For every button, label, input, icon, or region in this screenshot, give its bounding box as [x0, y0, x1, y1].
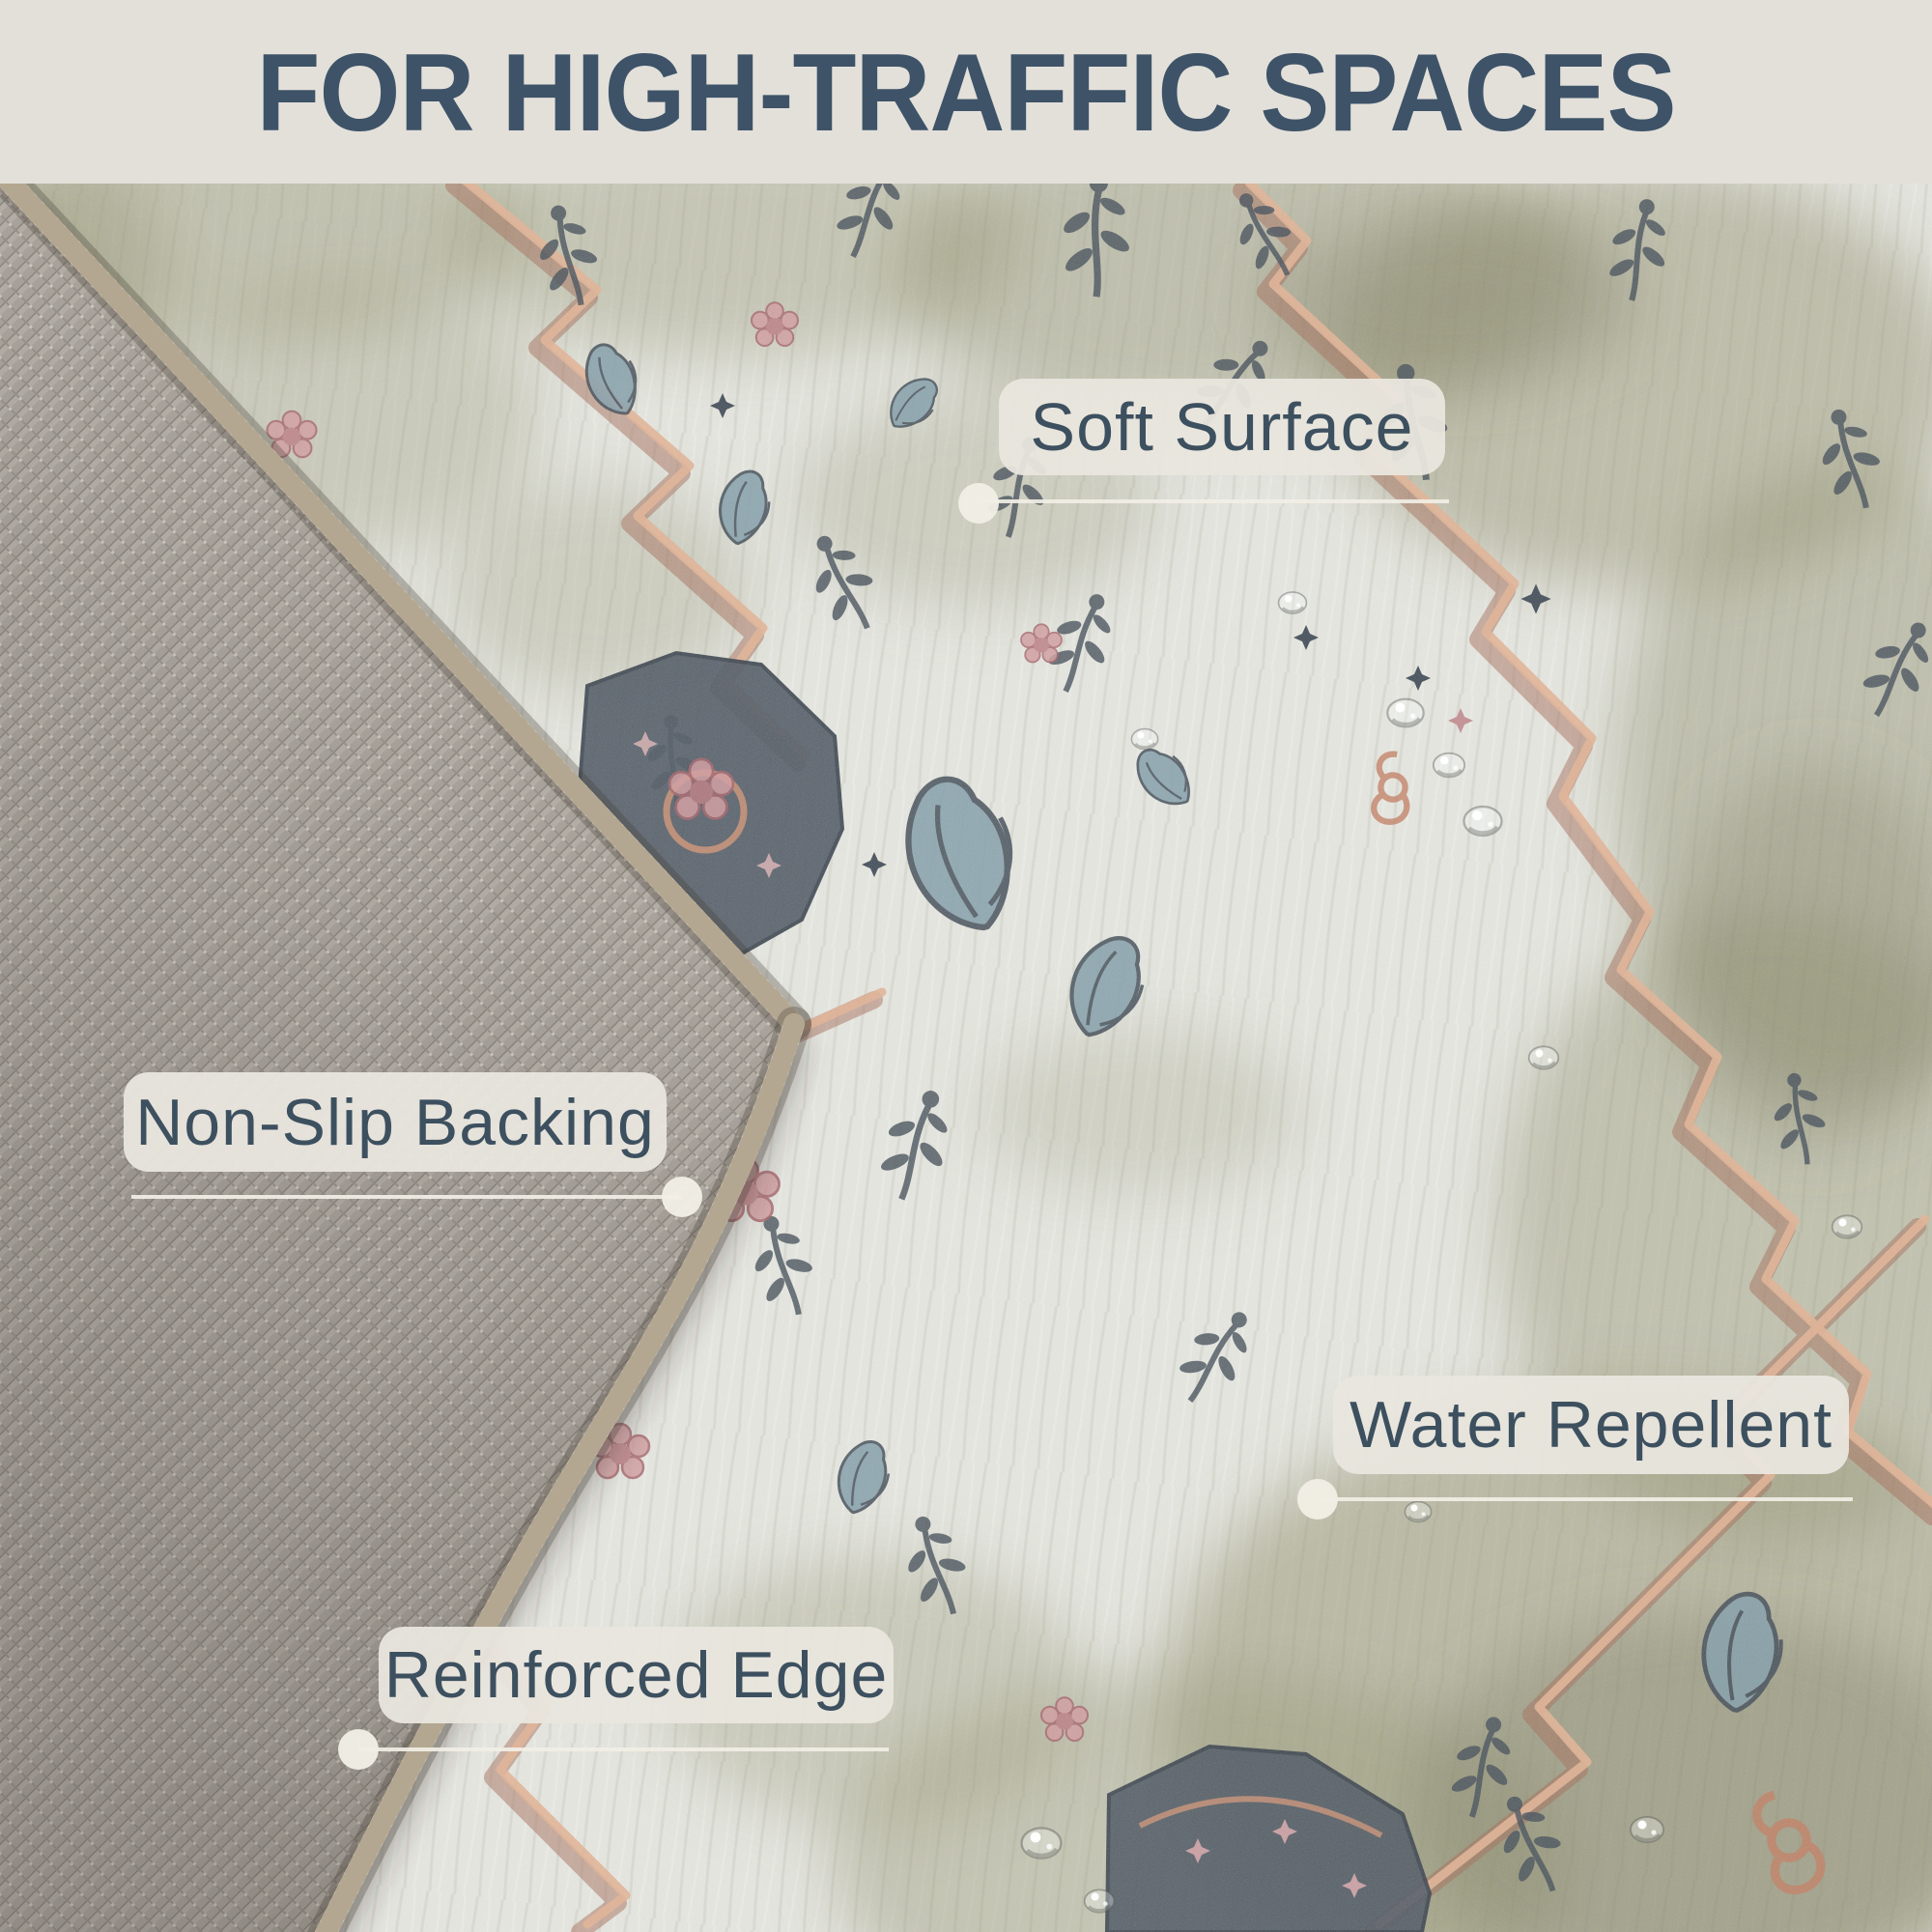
callout-dot-reinforced-edge	[338, 1729, 379, 1770]
callout-line-non-slip-backing	[131, 1195, 682, 1199]
callout-label-water-repellent: Water Repellent	[1333, 1376, 1849, 1474]
callout-line-water-repellent	[1318, 1497, 1853, 1501]
rug-photo	[0, 184, 1932, 1932]
rug-photo-canvas	[0, 184, 1932, 1932]
callout-line-reinforced-edge	[358, 1747, 889, 1751]
callout-label-soft-surface: Soft Surface	[999, 379, 1445, 475]
callout-label-reinforced-edge: Reinforced Edge	[379, 1627, 894, 1723]
page-title: FOR HIGH-TRAFFIC SPACES	[257, 28, 1676, 156]
product-feature-graphic: FOR HIGH-TRAFFIC SPACES	[0, 0, 1932, 1932]
callout-dot-soft-surface	[958, 483, 999, 524]
callout-dot-non-slip-backing	[662, 1177, 702, 1217]
callout-dot-water-repellent	[1297, 1479, 1338, 1520]
callout-line-soft-surface	[979, 499, 1449, 503]
header-banner: FOR HIGH-TRAFFIC SPACES	[0, 0, 1932, 184]
callout-label-non-slip-backing: Non-Slip Backing	[124, 1072, 667, 1172]
